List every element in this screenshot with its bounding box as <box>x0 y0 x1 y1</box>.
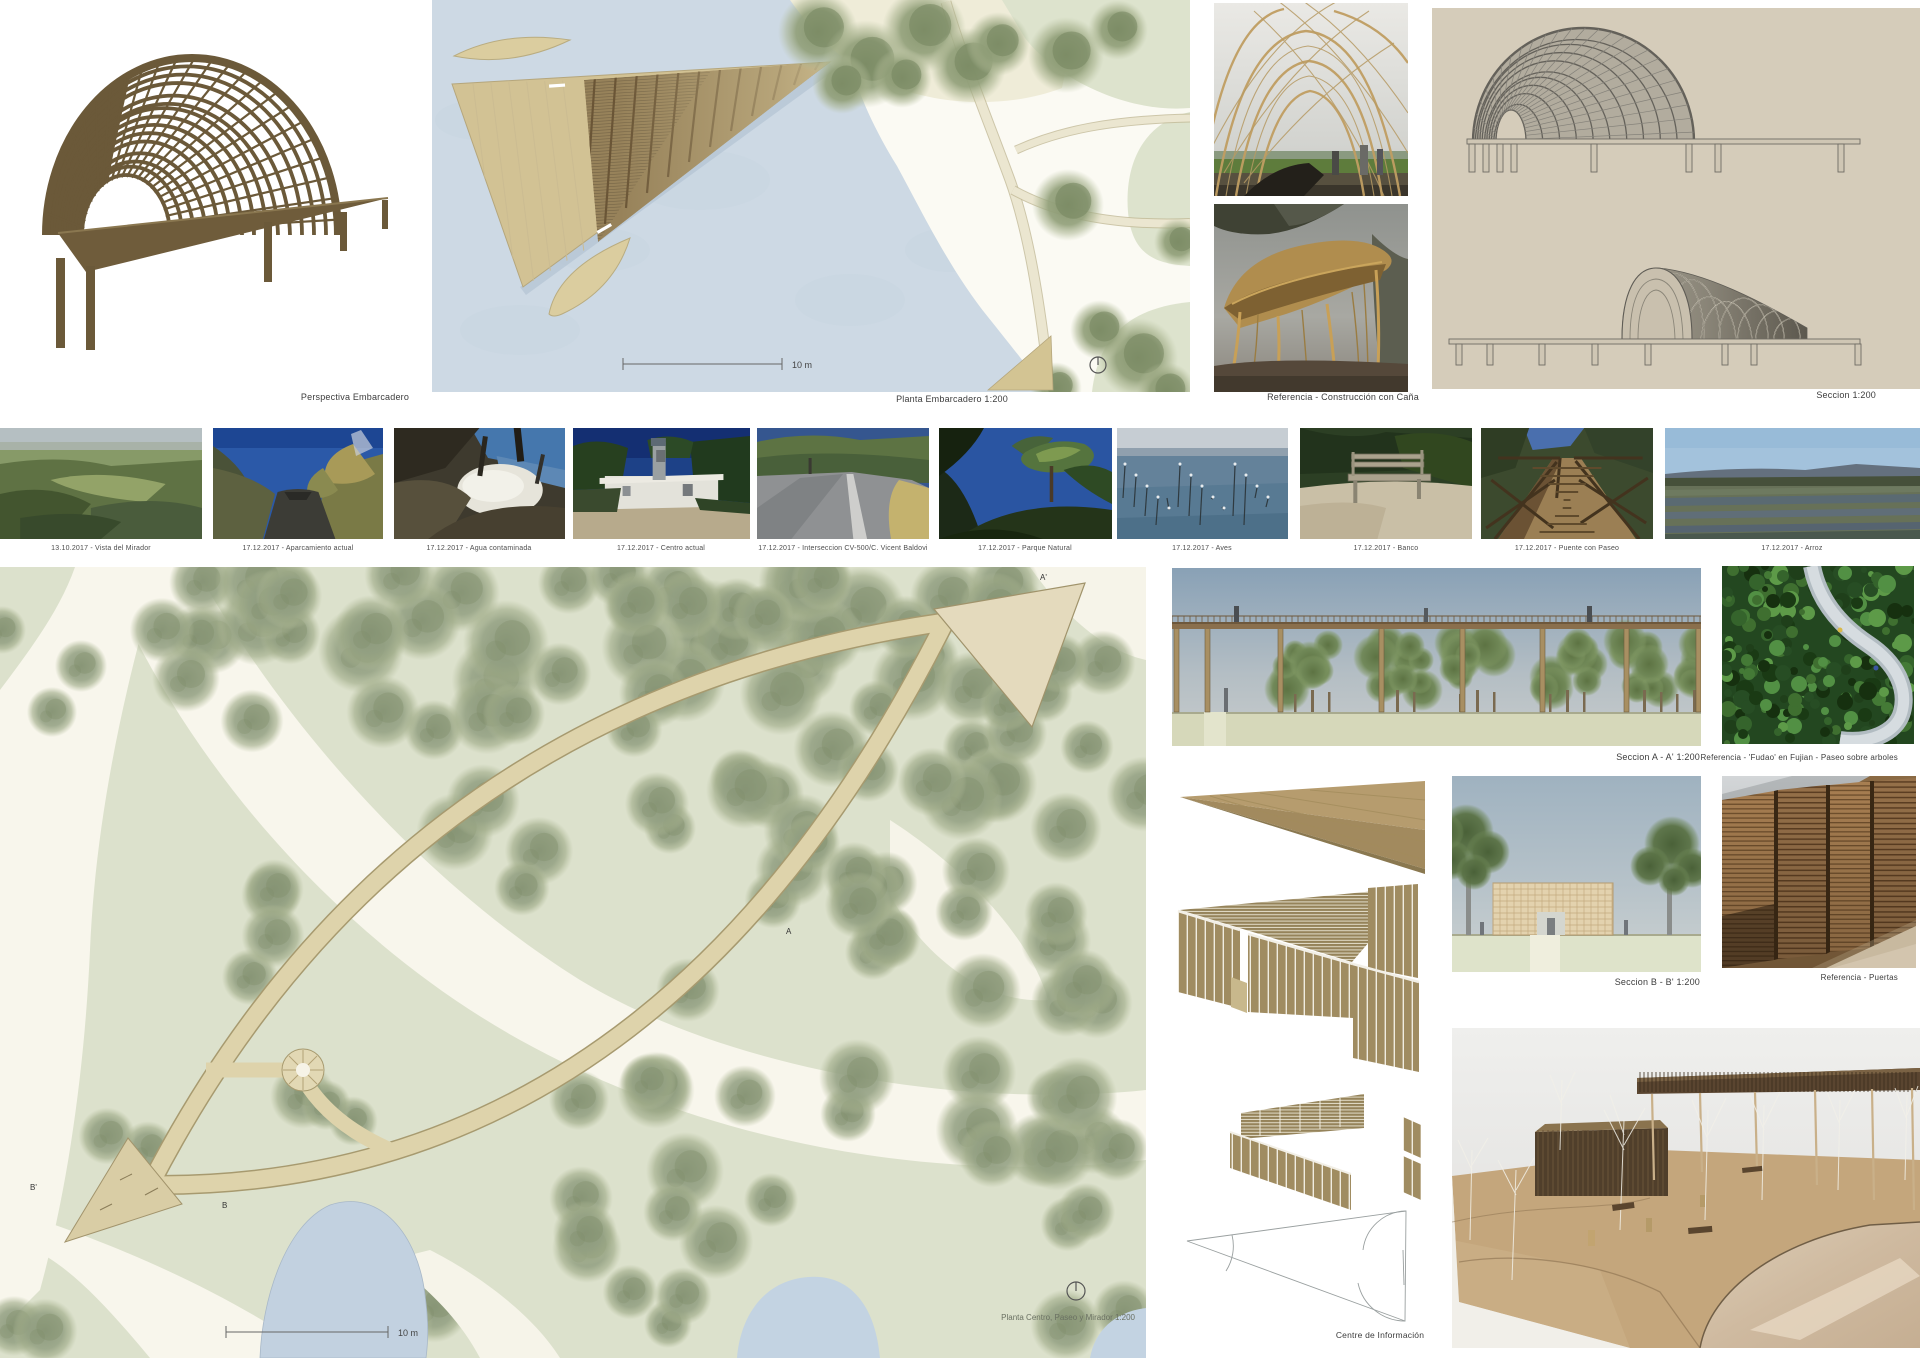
svg-text:A: A <box>786 927 792 936</box>
svg-text:10 m: 10 m <box>398 1328 418 1338</box>
svg-text:10 m: 10 m <box>792 360 812 370</box>
svg-text:A': A' <box>1040 573 1047 582</box>
svg-text:B: B <box>222 1201 227 1210</box>
svg-text:Planta Centro, Paseo y Mirador: Planta Centro, Paseo y Mirador 1:200 <box>1001 1313 1135 1322</box>
svg-text:B': B' <box>30 1183 37 1192</box>
